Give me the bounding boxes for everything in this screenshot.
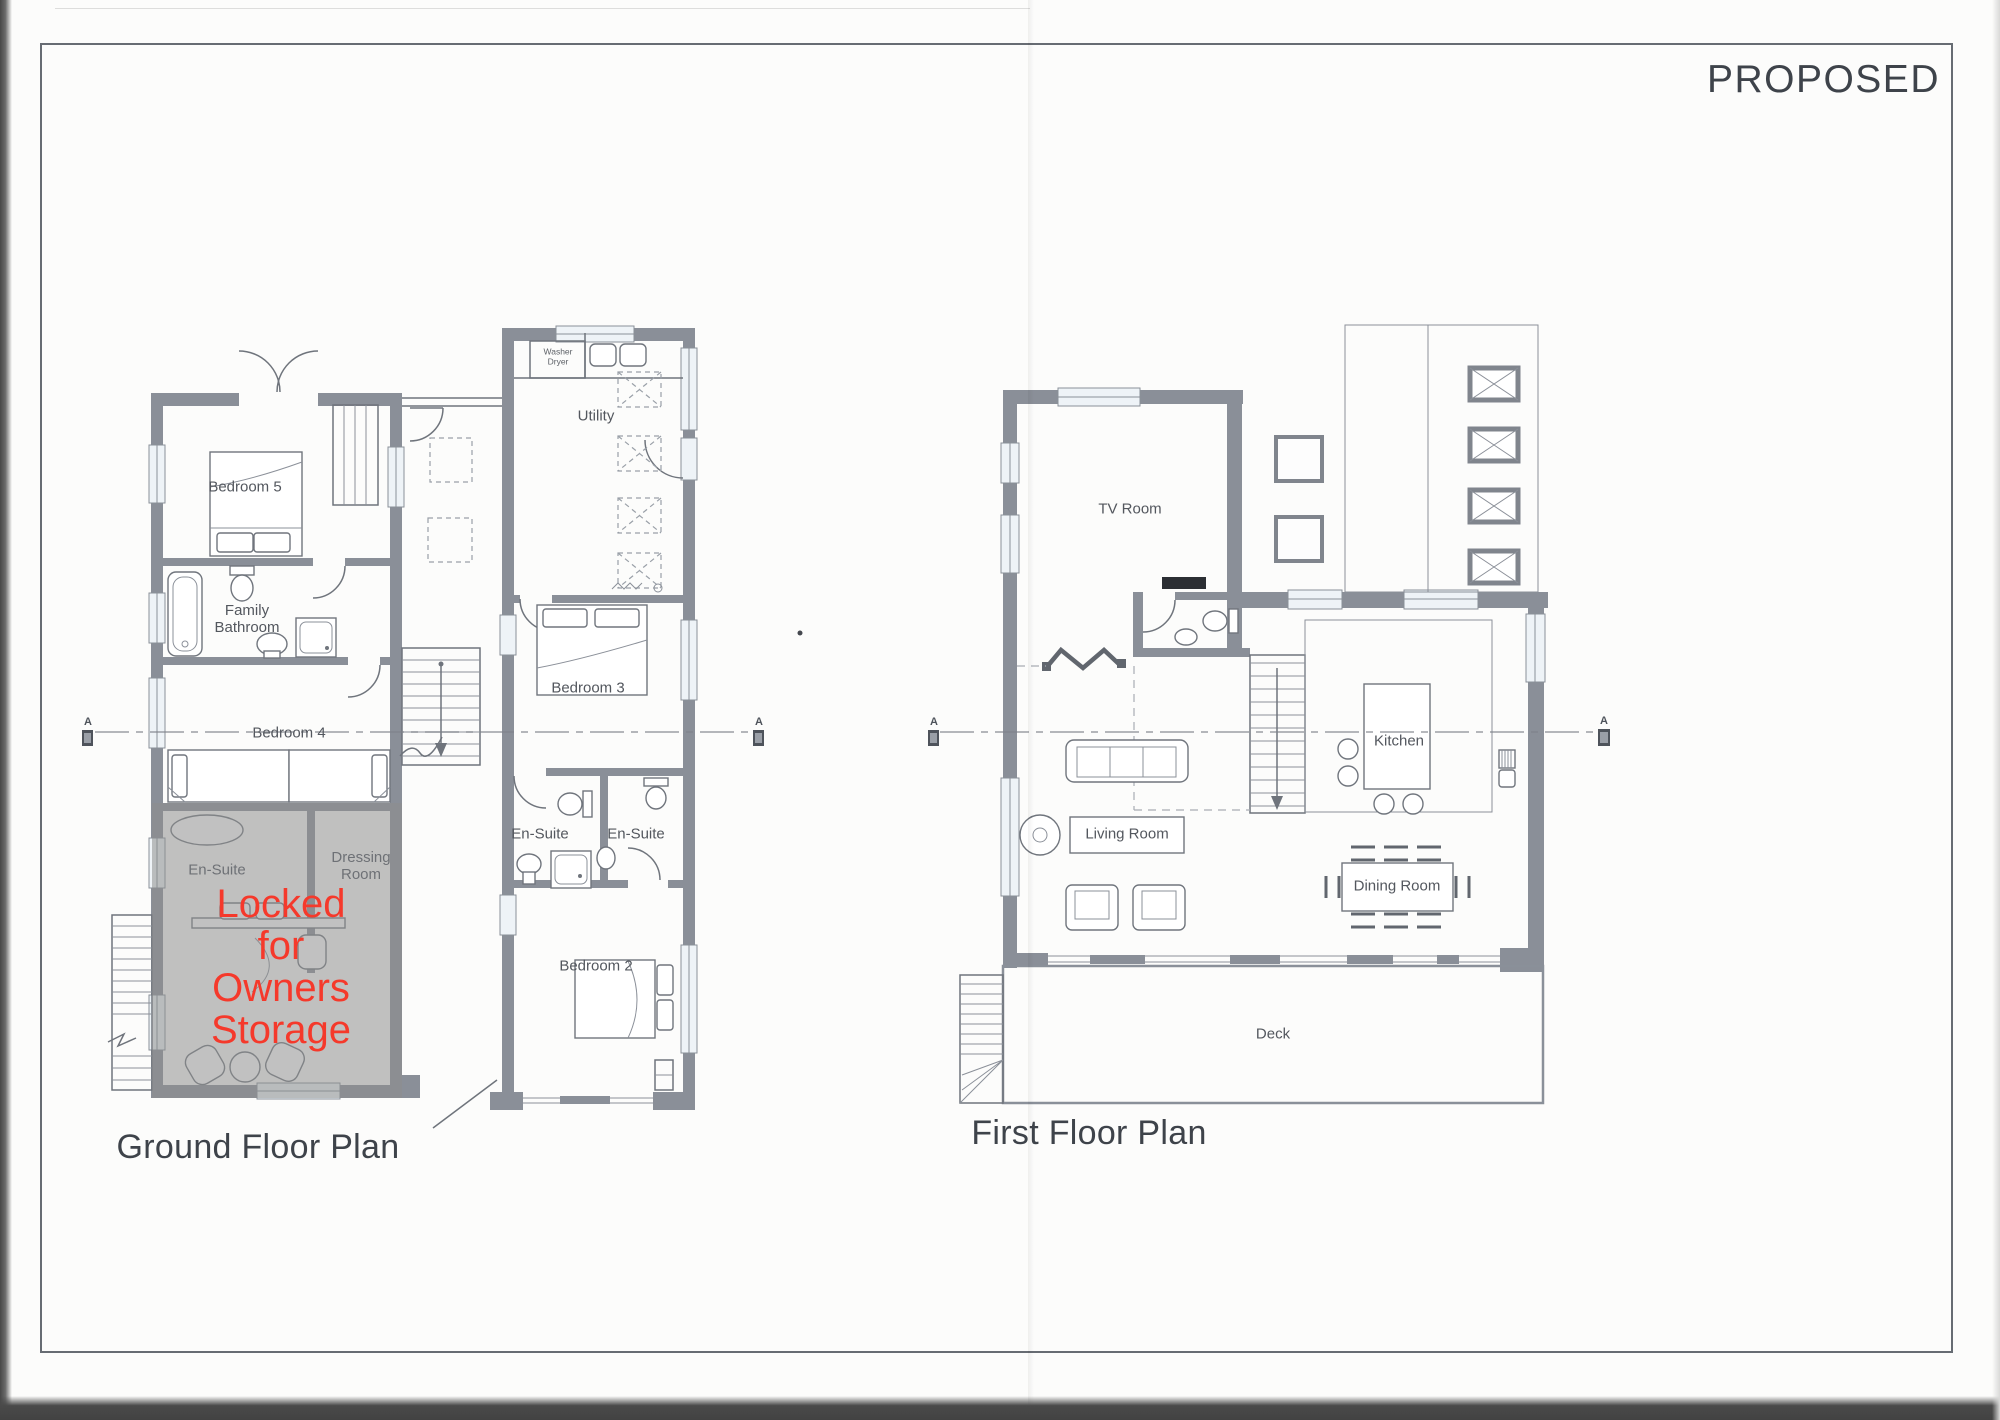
gf-courtyard xyxy=(402,398,502,562)
floor-plan-linework xyxy=(0,0,2000,1420)
toilet-icon xyxy=(1203,609,1238,633)
fridge-icon xyxy=(1499,750,1515,768)
gf-bedroom-2-bed xyxy=(575,960,673,1090)
first-floor-plan-caption: First Floor Plan xyxy=(971,1114,1206,1152)
room-label-tv-room: TV Room xyxy=(1098,502,1161,519)
sofa-icon xyxy=(1066,740,1188,782)
section-marker-a: A xyxy=(1600,715,1608,727)
room-label-bedroom-4: Bedroom 4 xyxy=(252,726,325,743)
room-label-family-bathroom: Family Bathroom xyxy=(214,603,279,637)
side-table-icon xyxy=(1020,815,1060,855)
stool-icon xyxy=(1403,794,1423,814)
sink-icon xyxy=(517,854,541,884)
room-label-dressing-room: Dressing Room xyxy=(331,850,390,884)
tv-unit-icon xyxy=(1162,577,1206,589)
utility-cupboards xyxy=(618,372,661,588)
room-label-living-room: Living Room xyxy=(1085,827,1168,844)
armchair-icon xyxy=(1066,885,1118,930)
shower-icon xyxy=(296,618,336,657)
ground-floor-plan-caption: Ground Floor Plan xyxy=(117,1128,400,1166)
toilet-icon xyxy=(230,566,254,601)
toilet-icon xyxy=(558,791,592,817)
roof-window-icon xyxy=(1470,490,1518,522)
toilet-icon xyxy=(644,778,668,809)
rooflight-icon xyxy=(1276,517,1322,561)
room-label-deck: Deck xyxy=(1256,1027,1290,1044)
scan-edge-bottom xyxy=(0,1396,2000,1420)
scan-edge-top xyxy=(55,8,1030,9)
gf-internal-stair xyxy=(400,648,480,765)
room-label-en-suite-1: En-Suite xyxy=(511,827,569,844)
scanned-drawing-page: PROPOSED Bedroom 5 Family Bathroom Bedro… xyxy=(0,0,2000,1420)
locked-for-owners-storage-note: Locked for Owners Storage xyxy=(211,883,351,1051)
rooflight-icon xyxy=(1276,437,1322,481)
roof-window-icon xyxy=(1470,429,1518,461)
section-marker-a: A xyxy=(84,716,92,728)
ff-stair xyxy=(1250,655,1305,813)
stool-icon xyxy=(1374,794,1394,814)
room-label-bedroom-3: Bedroom 3 xyxy=(551,681,624,698)
room-label-bedroom-5: Bedroom 5 xyxy=(208,480,281,497)
gf-double-entry-doors xyxy=(239,351,318,392)
room-label-en-suite-locked: En-Suite xyxy=(188,863,246,880)
shower-icon xyxy=(551,851,591,888)
roof-window-icon xyxy=(1470,368,1518,400)
room-label-en-suite-2: En-Suite xyxy=(607,827,665,844)
paper-fold-line xyxy=(1028,0,1034,1420)
section-marker-a: A xyxy=(755,716,763,728)
room-label-bedroom-2: Bedroom 2 xyxy=(559,959,632,976)
drawing-status-title: PROPOSED xyxy=(1707,58,1940,102)
sink-icon xyxy=(597,847,615,869)
room-label-utility: Utility xyxy=(578,409,615,426)
room-label-dining-room: Dining Room xyxy=(1354,879,1441,896)
roof-window-icon xyxy=(1470,551,1518,583)
ff-kitchen xyxy=(1305,620,1515,814)
stool-icon xyxy=(1338,739,1358,759)
sink-icon xyxy=(1175,629,1197,645)
ff-roof-area xyxy=(1276,325,1538,592)
ff-deck xyxy=(960,966,1543,1103)
sink-icon xyxy=(620,344,646,366)
armchair-icon xyxy=(1133,885,1185,930)
stool-icon xyxy=(1338,766,1358,786)
scan-edge-left xyxy=(0,0,12,1420)
scan-edge-right xyxy=(1992,0,2000,1420)
ff-wc xyxy=(1143,577,1238,645)
gf-utility-fixtures xyxy=(514,333,683,592)
scan-dot-artifact xyxy=(798,631,803,636)
gf-entrance-door-leaf xyxy=(433,1080,497,1128)
gf-bed-5 xyxy=(210,452,302,556)
oven-icon xyxy=(1499,770,1515,787)
room-label-kitchen: Kitchen xyxy=(1374,734,1424,751)
label-washer-dryer: Washer Dryer xyxy=(544,347,573,366)
gf-external-stair xyxy=(108,915,152,1090)
ff-folding-partition xyxy=(1042,650,1126,671)
sink-icon xyxy=(590,344,616,366)
ff-open-plan-dashed-lines xyxy=(1017,666,1250,810)
section-marker-a: A xyxy=(930,716,938,728)
